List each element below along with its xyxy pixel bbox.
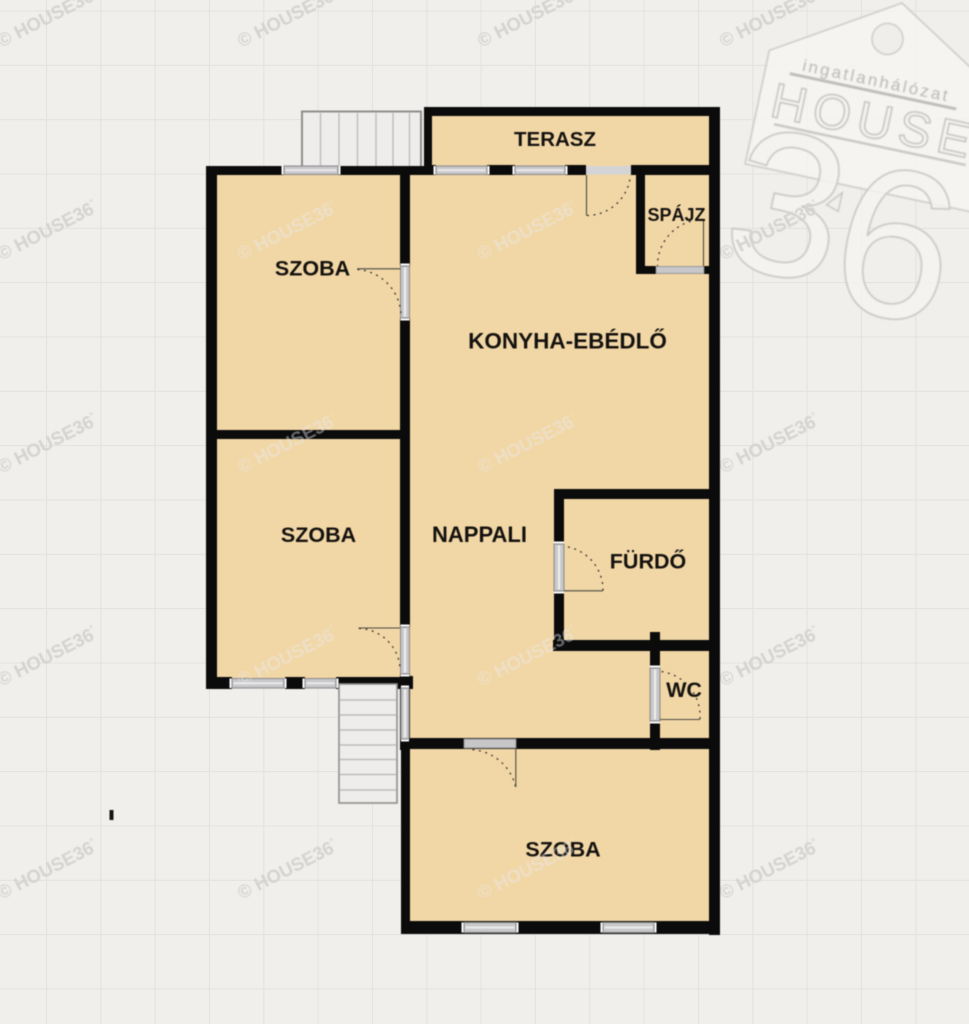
svg-text:TERASZ: TERASZ — [514, 128, 596, 151]
svg-text:FÜRDŐ: FÜRDŐ — [610, 549, 686, 574]
svg-text:SPÁJZ: SPÁJZ — [647, 204, 705, 225]
svg-text:SZOBA: SZOBA — [275, 257, 350, 281]
svg-text:SZOBA: SZOBA — [281, 523, 356, 547]
svg-text:NAPPALI: NAPPALI — [432, 522, 527, 547]
svg-text:KONYHA-EBÉDLŐ: KONYHA-EBÉDLŐ — [468, 329, 667, 354]
svg-text:WC: WC — [666, 678, 702, 702]
